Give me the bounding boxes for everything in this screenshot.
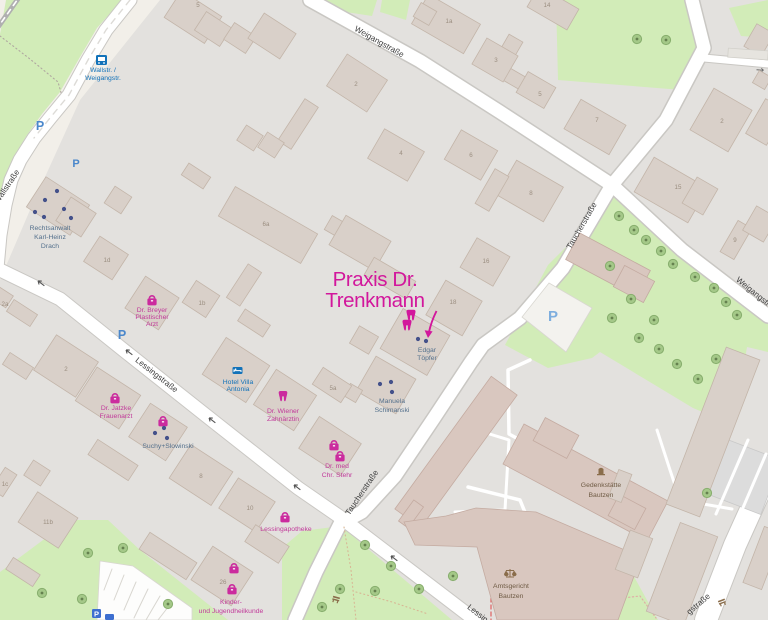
svg-text:16: 16 <box>483 258 490 265</box>
svg-text:3: 3 <box>494 57 498 64</box>
svg-text:Karl-Heinz: Karl-Heinz <box>34 234 66 241</box>
svg-text:14: 14 <box>544 2 551 9</box>
svg-text:Kinder-: Kinder- <box>220 599 242 606</box>
svg-text:Dr. Jatzke: Dr. Jatzke <box>101 405 131 412</box>
svg-text:18: 18 <box>450 299 457 306</box>
svg-text:P: P <box>118 328 126 342</box>
svg-text:Zahnärztin: Zahnärztin <box>267 416 299 423</box>
svg-text:15: 15 <box>675 184 682 191</box>
svg-text:5: 5 <box>196 2 200 9</box>
svg-text:P: P <box>36 119 44 133</box>
svg-text:8: 8 <box>199 473 203 480</box>
svg-text:Praxis Dr.: Praxis Dr. <box>333 268 418 291</box>
svg-text:1a: 1a <box>446 18 453 25</box>
svg-text:Manuela: Manuela <box>379 398 405 405</box>
svg-text:Gedenkstätte: Gedenkstätte <box>581 482 622 489</box>
svg-text:2: 2 <box>64 366 68 373</box>
svg-text:P: P <box>72 158 79 170</box>
svg-text:Plastischer: Plastischer <box>135 314 169 321</box>
svg-text:Amtsgericht: Amtsgericht <box>493 583 529 590</box>
svg-text:4: 4 <box>399 150 403 157</box>
svg-text:Trenkmann: Trenkmann <box>325 289 424 312</box>
svg-text:1c: 1c <box>2 481 9 488</box>
svg-text:Schimanski: Schimanski <box>375 407 410 414</box>
svg-text:Dr. med: Dr. med <box>325 463 349 470</box>
svg-text:7: 7 <box>595 117 599 124</box>
svg-text:2a: 2a <box>2 301 9 308</box>
svg-text:Arzt: Arzt <box>146 321 158 328</box>
svg-text:1b: 1b <box>199 300 206 307</box>
svg-text:2: 2 <box>354 81 358 88</box>
svg-text:5: 5 <box>538 91 542 98</box>
svg-text:Hotel Villa: Hotel Villa <box>223 379 254 386</box>
svg-text:8: 8 <box>529 190 533 197</box>
svg-text:Wallstr. /: Wallstr. / <box>90 67 116 74</box>
svg-text:Antonia: Antonia <box>226 386 249 393</box>
svg-text:und Jugendheilkunde: und Jugendheilkunde <box>199 608 264 615</box>
svg-text:5a: 5a <box>330 385 337 392</box>
svg-text:Töpfer: Töpfer <box>417 355 437 362</box>
svg-text:Dr. Breyer: Dr. Breyer <box>137 307 168 314</box>
svg-text:Chr. Stehr: Chr. Stehr <box>322 472 353 479</box>
svg-text:9: 9 <box>733 237 737 244</box>
svg-text:6: 6 <box>469 152 473 159</box>
svg-text:Bautzen: Bautzen <box>589 492 614 499</box>
svg-text:Bautzen: Bautzen <box>499 593 524 600</box>
svg-text:26: 26 <box>220 579 227 586</box>
svg-text:Dr. Wiener: Dr. Wiener <box>267 408 300 415</box>
svg-text:10: 10 <box>247 505 254 512</box>
svg-text:6a: 6a <box>263 221 270 228</box>
svg-text:2: 2 <box>720 118 724 125</box>
svg-text:Rechtsanwalt: Rechtsanwalt <box>30 225 71 232</box>
svg-text:P: P <box>548 308 558 325</box>
svg-text:Frauenarzt: Frauenarzt <box>100 413 133 420</box>
svg-text:1d: 1d <box>104 257 111 264</box>
svg-text:Edgar: Edgar <box>418 347 437 354</box>
svg-text:Suchy+Slowinski: Suchy+Slowinski <box>142 443 194 450</box>
svg-text:Lessingapotheke: Lessingapotheke <box>260 526 312 533</box>
svg-text:Weigangstr.: Weigangstr. <box>85 75 121 82</box>
svg-text:11b: 11b <box>43 519 53 526</box>
svg-text:P: P <box>94 610 99 619</box>
svg-text:Drach: Drach <box>41 243 59 250</box>
